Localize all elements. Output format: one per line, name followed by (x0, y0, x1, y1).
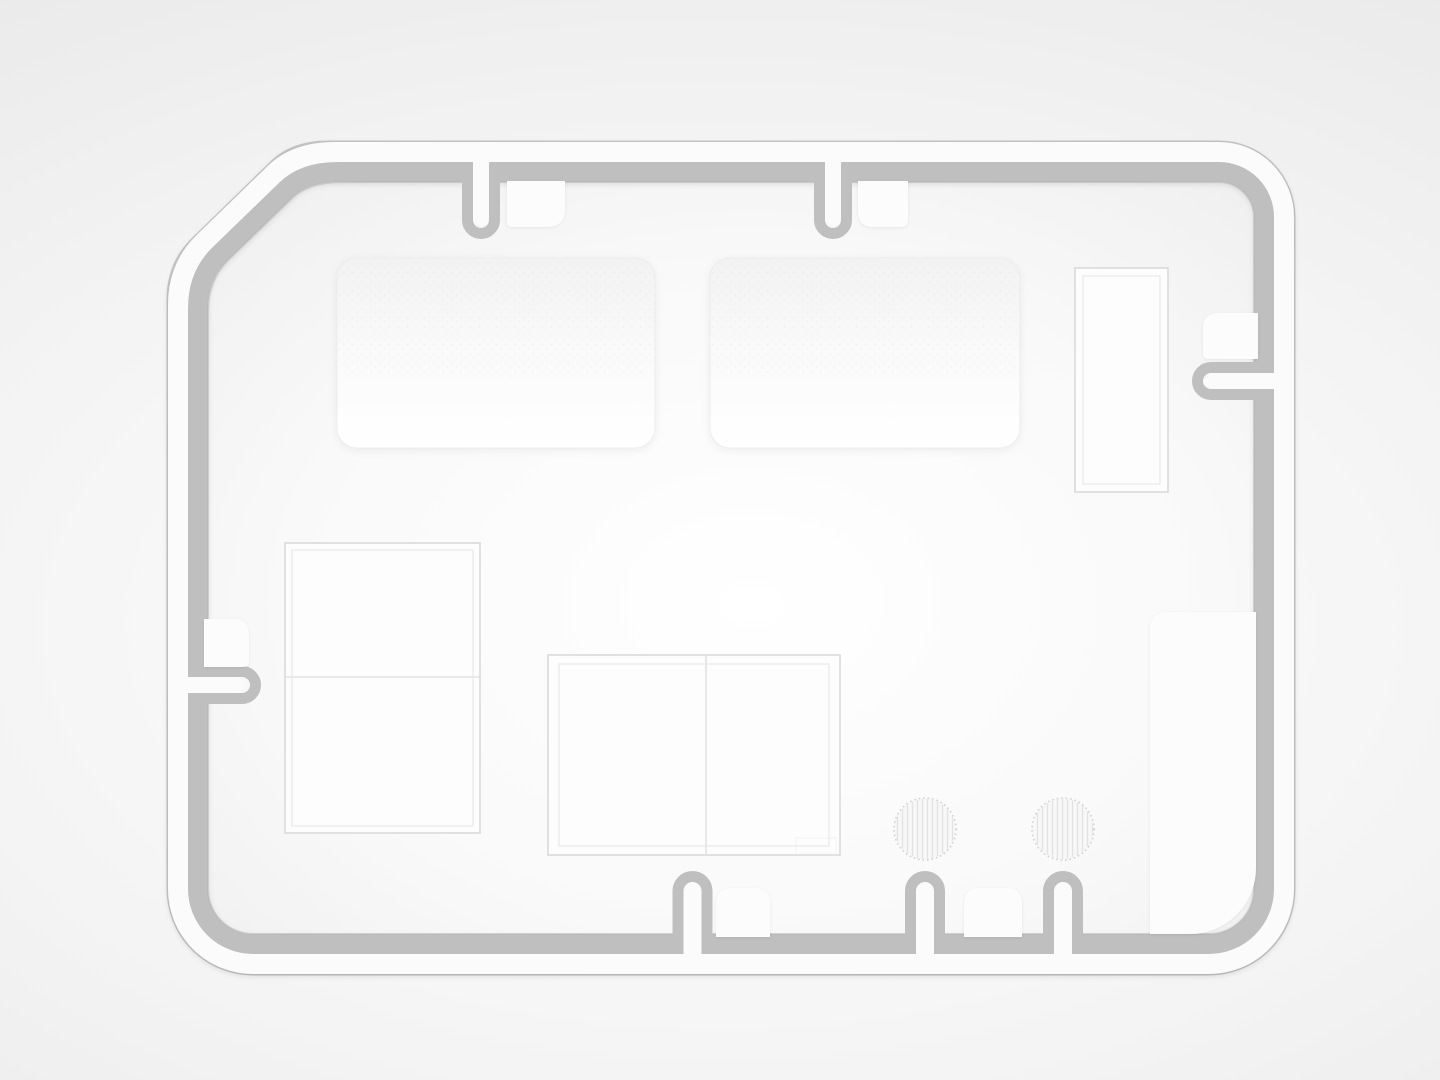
notch-slot-bottom-2 (916, 882, 934, 962)
panel-top-left-speckle (337, 258, 655, 378)
panel-bottom-right (1150, 612, 1256, 934)
tab-bottom-1 (716, 888, 770, 937)
notch-slot-top-2 (825, 150, 841, 226)
tab-left (204, 619, 249, 667)
notch-slot-right (1202, 373, 1280, 389)
tab-right (1203, 313, 1258, 359)
notch-slot-left (176, 677, 244, 693)
render-canvas (0, 0, 1440, 1080)
board-outline-render (0, 0, 1440, 1080)
framed-rect-right (1075, 268, 1168, 492)
framed-rect-center (548, 655, 840, 855)
tab-bottom-2 (964, 888, 1022, 937)
hatched-circle-2-stripes (1033, 799, 1093, 859)
hatched-circle-1 (894, 798, 956, 860)
hatched-circle-1-stripes (895, 799, 955, 859)
tab-top-1 (507, 181, 565, 227)
panel-top-left (337, 258, 655, 448)
tab-top-2 (858, 181, 908, 227)
panel-top-middle (710, 258, 1020, 448)
notch-slot-bottom-1 (684, 882, 702, 962)
panel-top-middle-speckle (710, 258, 1020, 378)
notch-slot-bottom-3 (1054, 882, 1072, 962)
framed-rect-left (285, 543, 480, 833)
notch-slot-top-1 (473, 150, 489, 226)
hatched-circle-2 (1032, 798, 1094, 860)
